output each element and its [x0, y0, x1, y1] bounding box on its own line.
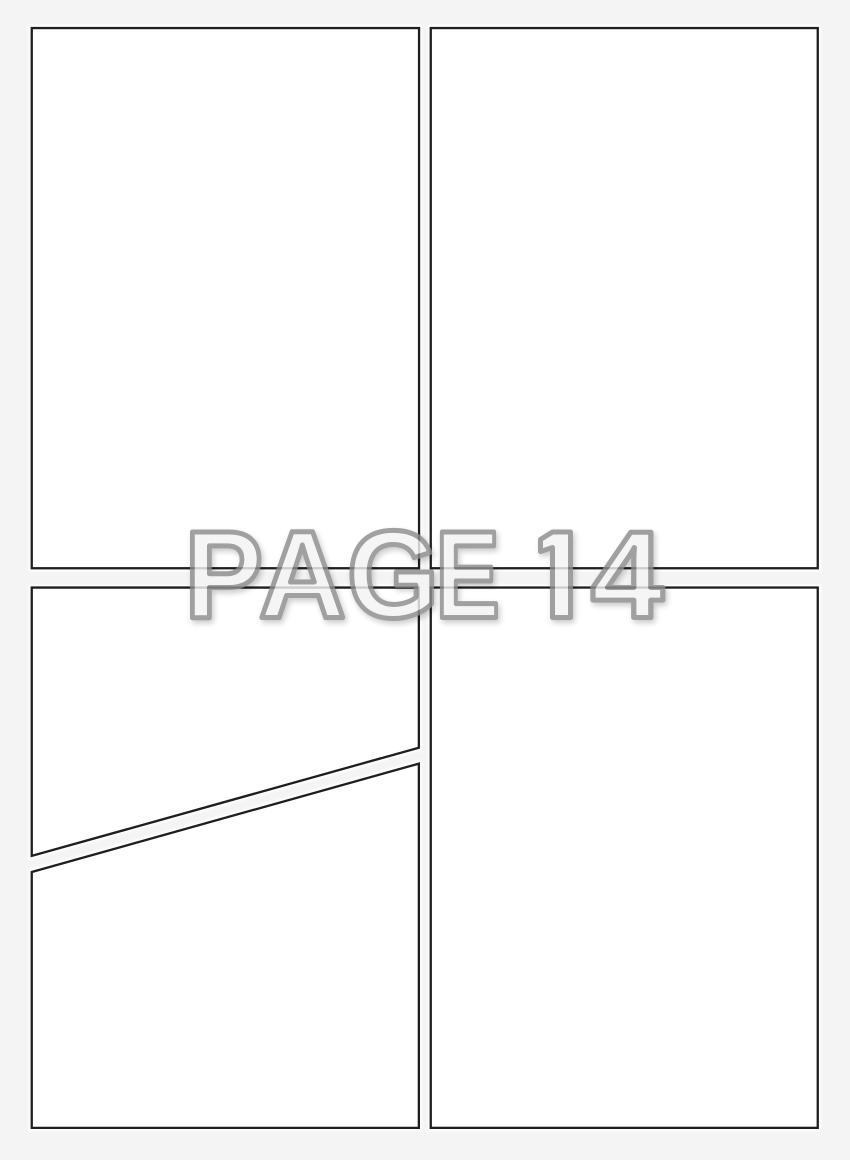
svg-text:E: E [435, 507, 500, 645]
svg-text:A: A [259, 507, 346, 645]
svg-text:4: 4 [591, 507, 664, 645]
svg-text:P: P [185, 507, 264, 645]
svg-text:G: G [347, 507, 439, 645]
